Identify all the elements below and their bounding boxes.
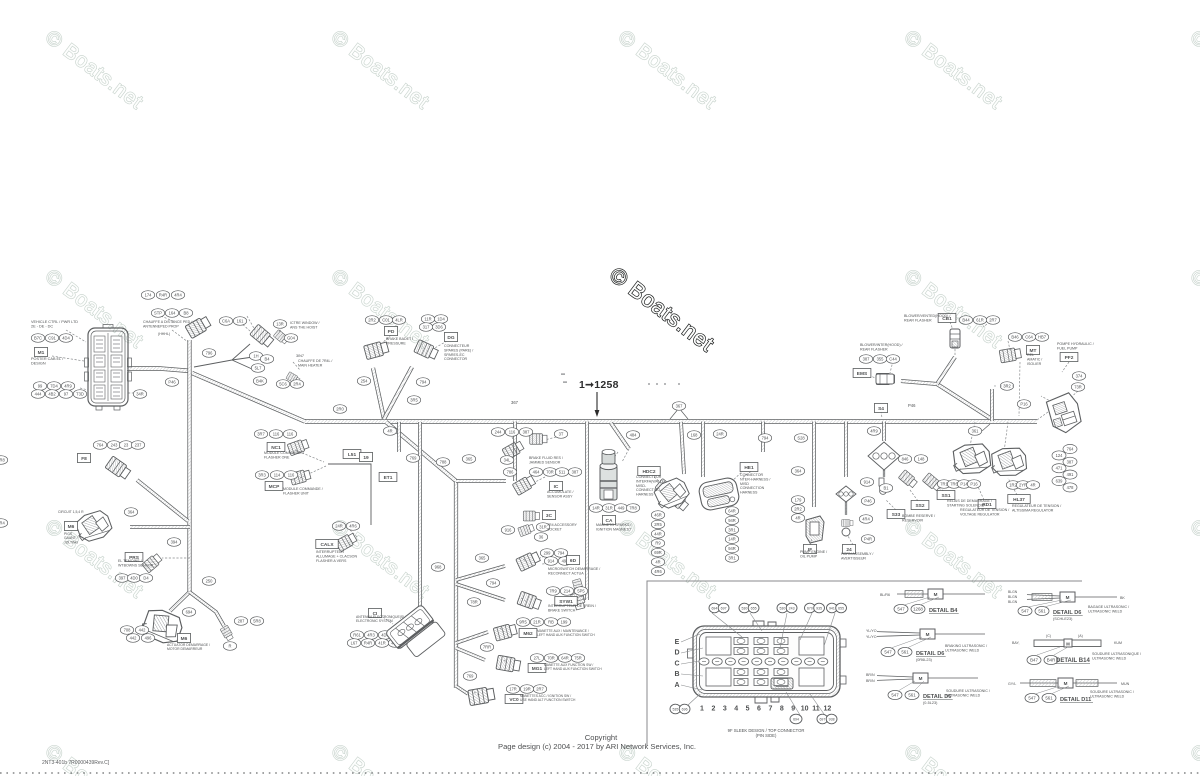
svg-text:639: 639 [1056,479,1064,484]
svg-text:ULTRASONIC WELD: ULTRASONIC WELD [945,649,980,653]
svg-text:CONNECTOR: CONNECTOR [444,357,467,361]
svg-text:7D4: 7D4 [50,384,58,389]
svg-text:CALX: CALX [320,542,334,548]
svg-text:394: 394 [171,540,179,545]
svg-text:46R: 46R [654,513,662,518]
svg-text:M: M [1066,595,1070,600]
svg-text:4R: 4R [655,560,660,565]
svg-text:A: A [674,682,679,689]
svg-text:1➞1258: 1➞1258 [579,379,619,391]
svg-text:YL/YO: YL/YO [866,635,877,639]
svg-text:D4: D4 [143,576,149,581]
svg-text:ULTRASONIC WELD: ULTRASONIC WELD [1088,610,1123,614]
svg-text:794: 794 [490,581,498,586]
svg-text:697: 697 [721,606,727,610]
svg-text:5C6: 5C6 [279,382,287,387]
svg-text:SOUDURE ULTRASONIQUE /: SOUDURE ULTRASONIQUE / [1092,652,1141,656]
svg-text:935: 935 [816,606,822,610]
svg-text:GY/L: GY/L [1008,682,1016,686]
svg-text:364: 364 [795,469,803,474]
svg-text:ISOLIER: ISOLIER [1027,362,1042,366]
svg-text:3R1: 3R1 [728,556,736,561]
svg-text:3: 3 [723,706,727,713]
svg-text:WTBOWNS SENSOR: WTBOWNS SENSOR [118,563,154,567]
svg-text:941: 941 [829,606,835,610]
svg-text:7R4 ACCESSORY: 7R4 ACCESSORY [547,523,577,527]
svg-text:RELAIS DE DEMARRAGE /: RELAIS DE DEMARRAGE / [947,499,992,503]
svg-text:387: 387 [1067,459,1075,464]
svg-text:4R: 4R [387,429,392,434]
svg-text:ULTRASONIC WELD: ULTRASONIC WELD [1090,695,1125,699]
svg-text:449: 449 [618,506,626,511]
svg-text:496: 496 [145,636,153,641]
svg-text:(A): (A) [1078,634,1083,638]
svg-text:4R6: 4R6 [654,569,662,574]
svg-text:237: 237 [135,443,143,448]
svg-text:RB: RB [548,620,554,625]
svg-text:HARNESS: HARNESS [740,491,758,495]
svg-text:4LR: 4LR [395,318,403,323]
svg-text:P46: P46 [864,499,872,504]
svg-text:ULTRASONIC WELD: ULTRASONIC WELD [946,694,981,698]
svg-text:491: 491 [1067,472,1075,477]
svg-text:CIRCUIT 1,5,4 R: CIRCUIT 1,5,4 R [58,510,84,514]
svg-text:SOUDURE ULTRASONIC /: SOUDURE ULTRASONIC / [946,689,990,693]
svg-text:317: 317 [423,325,431,330]
svg-text:1: 1 [700,706,704,713]
svg-text:34R: 34R [136,392,144,397]
svg-text:2R2: 2R2 [368,318,376,323]
svg-text:444: 444 [35,392,43,397]
svg-text:DETAIL B14: DETAIL B14 [1056,658,1090,664]
svg-text:694: 694 [186,610,194,615]
svg-text:STARTING SOLENOID: STARTING SOLENOID [947,503,985,507]
svg-text:61R: 61R [976,318,984,323]
svg-text:287: 287 [238,619,246,624]
svg-text:P46: P46 [168,380,176,385]
svg-text:244: 244 [495,430,503,435]
svg-text:2E - DE - DC: 2E - DE - DC [31,325,53,329]
svg-text:AVERTISSEUR: AVERTISSEUR [841,556,866,560]
svg-text:442: 442 [139,628,147,633]
svg-text:POMPE HYDRAULIC /: POMPE HYDRAULIC / [1057,342,1094,346]
svg-text:STP: STP [154,311,162,316]
svg-text:B4K: B4K [256,379,264,384]
svg-text:694: 694 [711,606,717,610]
svg-text:530: 530 [741,606,747,610]
svg-text:4B2: 4B2 [48,392,56,397]
svg-text:4D4: 4D4 [62,336,70,341]
svg-text:299: 299 [544,551,552,556]
svg-text:199: 199 [561,620,569,625]
svg-text:REL: REL [1027,353,1034,357]
svg-text:69R: 69R [654,550,662,555]
svg-text:YL/YO: YL/YO [866,629,877,633]
svg-text:R4R: R4R [159,293,167,298]
svg-text:CONNECTEUR: CONNECTEUR [636,475,662,479]
svg-text:BAY,: BAY, [1012,641,1020,645]
svg-text:MAIN HEATER: MAIN HEATER [298,363,323,367]
svg-text:(PIN SIDE): (PIN SIDE) [756,733,777,738]
svg-text:4R4: 4R4 [174,293,182,298]
svg-text:243: 243 [789,606,795,610]
svg-text:547: 547 [884,650,892,655]
svg-text:MISD-: MISD- [636,484,647,488]
svg-text:14R: 14R [728,537,736,542]
svg-text:670: 670 [807,606,813,610]
svg-text:BLGN: BLGN [1008,595,1018,599]
svg-text:PD: PD [388,329,395,335]
svg-text:547: 547 [1028,696,1036,701]
svg-text:BRAKE BADET /: BRAKE BADET / [386,337,413,341]
svg-text:174: 174 [145,293,153,298]
svg-text:MAGNETO SPARKS /: MAGNETO SPARKS / [596,523,631,527]
svg-text:367: 367 [511,400,519,405]
svg-text:MG1: MG1 [532,666,543,672]
svg-text:BAGAGE ULTRASONIC /: BAGAGE ULTRASONIC / [1088,605,1129,609]
svg-text:R4R: R4R [364,641,372,646]
svg-text:FLASHER ONE: FLASHER ONE [264,455,290,459]
svg-text:846: 846 [902,457,910,462]
svg-text:ELECTRONIC SYSTEM: ELECTRONIC SYSTEM [356,619,393,623]
svg-text:4R6: 4R6 [349,524,357,529]
svg-text:36: 36 [539,535,544,540]
svg-text:4R: 4R [1030,483,1035,488]
svg-text:CONNECTION: CONNECTION [740,486,765,490]
svg-text:BLOWER/VENTED(HOOD) /: BLOWER/VENTED(HOOD) / [904,314,950,318]
svg-text:ET1: ET1 [384,475,393,481]
svg-text:387: 387 [523,430,531,435]
svg-text:530: 530 [779,606,785,610]
svg-text:968: 968 [435,565,443,570]
svg-text:365: 365 [466,457,474,462]
svg-text:ICTRE WINDOW /: ICTRE WINDOW / [290,321,320,325]
svg-text:94R: 94R [728,518,736,523]
svg-text:2R4: 2R4 [293,382,301,387]
svg-text:(SCHLE23): (SCHLE23) [1053,617,1073,621]
svg-text:FLASHER UNIT: FLASHER UNIT [283,491,310,495]
svg-text:547: 547 [891,693,899,698]
svg-text:561: 561 [901,650,909,655]
svg-text:LEFT HAND AUX FUNCTION SWITCH: LEFT HAND AUX FUNCTION SWITCH [537,633,595,637]
svg-text:LEFT HAND AUX FUNCTION SWITCH: LEFT HAND AUX FUNCTION SWITCH [544,667,602,671]
svg-text:Page design (c) 2004 - 2017 by: Page design (c) 2004 - 2017 by ARI Netwo… [498,742,696,751]
svg-text:AMATIC /: AMATIC / [1027,357,1042,361]
svg-text:3T: 3T [559,432,564,437]
svg-text:3R3: 3R3 [258,473,266,478]
svg-text:M: M [1066,642,1070,647]
svg-text:C91: C91 [48,336,56,341]
svg-text:374: 374 [1076,374,1084,379]
svg-text:2: 2 [711,706,715,713]
svg-text:RESERVOIR: RESERVOIR [902,518,924,522]
svg-text:6D: 6D [570,558,577,564]
svg-text:364: 364 [128,510,136,515]
svg-text:DETAIL D6: DETAIL D6 [916,651,944,657]
svg-text:BLOWER/INTER(HOOD) /: BLOWER/INTER(HOOD) / [860,343,903,347]
svg-text:INTERRUPTEUR: INTERRUPTEUR [316,550,345,554]
svg-text:C64: C64 [1025,335,1033,340]
svg-text:7R8: 7R8 [629,506,637,511]
svg-text:L51: L51 [348,452,357,458]
svg-text:655: 655 [751,606,757,610]
svg-text:367: 367 [676,404,684,409]
svg-text:C: C [674,660,679,667]
svg-text:355: 355 [877,357,885,362]
svg-text:ACCUMULATE /: ACCUMULATE / [547,490,574,494]
svg-text:DESIGN: DESIGN [31,362,46,366]
svg-text:(C): (C) [1046,634,1051,638]
svg-text:2R0: 2R0 [336,407,344,412]
svg-text:B4: B4 [264,357,270,362]
svg-text:B8: B8 [183,311,189,316]
svg-text:JOLTING: JOLTING [64,540,78,544]
svg-text:3R5: 3R5 [410,398,418,403]
svg-text:S28: S28 [797,436,805,441]
svg-text:NTER-HARNESS /: NTER-HARNESS / [740,477,770,481]
svg-text:MODULE COMMANDE /: MODULE COMMANDE / [264,451,304,455]
svg-text:FUEL PUMP: FUEL PUMP [1057,346,1078,350]
svg-text:3C: 3C [546,513,553,519]
svg-text:BR/N: BR/N [866,673,875,677]
svg-text:7R8: 7R8 [0,458,5,463]
svg-text:INTERRUPTEUR DE FREIN /: INTERRUPTEUR DE FREIN / [548,604,596,608]
svg-text:HB7: HB7 [1038,335,1047,340]
svg-text:24R: 24R [335,524,343,529]
svg-text:PRESSURE: PRESSURE [386,341,406,345]
svg-text:938: 938 [829,717,835,721]
svg-text:13R: 13R [276,322,284,327]
svg-text:EL TEMOINS /: EL TEMOINS / [118,559,142,563]
svg-text:MOTOR DEMARREUR: MOTOR DEMARREUR [167,647,203,651]
svg-text:696: 696 [682,707,688,711]
svg-text:179: 179 [795,498,803,503]
svg-text:243: 243 [111,443,119,448]
svg-text:9R5: 9R5 [519,620,527,625]
svg-text:ALLUMAGE + CLACSON: ALLUMAGE + CLACSON [316,554,357,558]
svg-text:794: 794 [420,380,428,385]
svg-text:788: 788 [440,460,448,465]
svg-text:94R: 94R [728,546,736,551]
svg-text:BRAKE SWITCH: BRAKE SWITCH [548,608,576,612]
svg-text:168: 168 [691,433,699,438]
svg-text:B47: B47 [1030,658,1038,663]
svg-text:SOUDURE ULTRASONIC /: SOUDURE ULTRASONIC / [1090,690,1134,694]
svg-text:116: 116 [273,432,280,437]
svg-text:HORN ASSEMBLY /: HORN ASSEMBLY / [841,552,873,556]
svg-text:361: 361 [972,429,980,434]
svg-text:REGULATEUR DE TENSION /: REGULATEUR DE TENSION / [1012,504,1061,508]
svg-text:CONNECTEUR: CONNECTEUR [444,344,470,348]
svg-text:2R2: 2R2 [794,507,802,512]
svg-text:161: 161 [237,319,245,324]
svg-text:23: 23 [124,443,129,448]
svg-text:HARNESS: HARNESS [636,493,654,497]
svg-text:BRAKE FLUID RES /: BRAKE FLUID RES / [529,456,563,460]
svg-text:R61: R61 [353,633,361,638]
svg-text:REGULATEUR DE TENSION /: REGULATEUR DE TENSION / [960,508,1009,512]
svg-text:ALTISSIMA REGULATOR: ALTISSIMA REGULATOR [1012,508,1054,512]
svg-text:214: 214 [564,589,572,594]
svg-text:VEHICLE CTRL / PWR LTD: VEHICLE CTRL / PWR LTD [31,320,78,324]
svg-text:3IN7: 3IN7 [296,354,304,358]
svg-text:561: 561 [908,693,916,698]
svg-text:365: 365 [479,556,487,561]
svg-text:5: 5 [746,706,750,713]
svg-text:INTERFA(WALL): INTERFA(WALL) [636,479,663,483]
svg-text:478: 478 [1067,485,1075,490]
svg-text:655: 655 [838,606,844,610]
svg-text:397: 397 [119,576,127,581]
svg-text:P16: P16 [970,482,978,487]
svg-text:148: 148 [918,457,926,462]
svg-text:914: 914 [548,559,556,564]
svg-text:JAMMED SENSOR: JAMMED SENSOR [529,460,561,464]
svg-text:M6: M6 [68,524,75,530]
svg-text:64R: 64R [561,656,569,661]
svg-text:ANTENNEPED PROP: ANTENNEPED PROP [143,324,179,328]
svg-text:4R3: 4R3 [367,633,375,638]
svg-text:HE1: HE1 [744,465,754,471]
svg-text:2R5: 2R5 [654,522,662,527]
svg-text:19: 19 [363,455,369,461]
svg-text:B4R: B4R [1047,658,1056,663]
svg-text:S4: S4 [878,406,884,412]
svg-text:2R7: 2R7 [989,318,997,323]
svg-text:MUN: MUN [1121,682,1130,686]
svg-text:5L7: 5L7 [255,366,263,371]
svg-text:794: 794 [558,551,566,556]
svg-text:ULTRASONIC WELD: ULTRASONIC WELD [1092,657,1127,661]
svg-text:44R: 44R [654,531,662,536]
svg-text:764: 764 [97,443,105,448]
svg-text:4R9: 4R9 [870,429,878,434]
svg-text:B44: B44 [962,318,970,323]
svg-text:764: 764 [1067,447,1075,452]
svg-text:P16: P16 [1020,402,1028,407]
svg-text:KUM: KUM [1114,641,1122,645]
svg-text:(HHHL): (HHHL) [158,332,170,336]
svg-text:REAR FLASHER: REAR FLASHER [904,318,932,322]
svg-text:SPARES (PARE) /: SPARES (PARE) / [444,348,473,352]
svg-text:VOLTAGE REGULATOR: VOLTAGE REGULATOR [960,512,1000,516]
svg-text:116: 116 [288,473,295,478]
svg-text:IGNITION MAGNETO: IGNITION MAGNETO [596,527,631,531]
svg-text:BL/R6: BL/R6 [880,593,890,597]
svg-text:OIL PUMP: OIL PUMP [800,554,818,558]
svg-text:F8: F8 [81,456,87,462]
svg-text:HL37: HL37 [1013,497,1025,503]
svg-text:70R: 70R [546,470,554,475]
svg-text:M1: M1 [38,350,45,356]
svg-text:M: M [926,632,930,637]
svg-text:CHAUFFE A DISTANCE PED /: CHAUFFE A DISTANCE PED / [143,320,192,324]
svg-text:Copyright: Copyright [585,733,618,742]
svg-text:1268: 1268 [913,607,923,612]
svg-text:916: 916 [505,528,513,533]
svg-text:254: 254 [361,379,369,384]
svg-text:914: 914 [864,480,872,485]
svg-text:70R: 70R [547,656,555,661]
svg-text:561: 561 [1045,696,1053,701]
svg-text:19R: 19R [523,687,531,692]
svg-text:REAR FLASHER: REAR FLASHER [860,347,888,351]
svg-text:MCP: MCP [269,484,280,490]
svg-text:E: E [675,639,680,646]
svg-text:1D4: 1D4 [437,317,445,322]
svg-text:4R9: 4R9 [64,384,72,389]
svg-text:547: 547 [897,607,905,612]
svg-text:DETAIL D11: DETAIL D11 [1060,697,1091,703]
svg-text:VC0: VC0 [509,697,519,703]
svg-text:C6A: C6A [222,319,230,324]
svg-text:DG: DG [447,335,454,341]
svg-text:387: 387 [572,470,580,475]
svg-text:7R9: 7R9 [549,589,557,594]
svg-text:M62: M62 [523,631,533,637]
svg-text:M6: M6 [181,636,188,642]
svg-text:442: 442 [130,636,138,641]
svg-text:BR/N: BR/N [866,679,875,683]
svg-text:PUMP ENGINE /: PUMP ENGINE / [800,550,827,554]
svg-text:250: 250 [206,579,214,584]
svg-text:MODULE COMMANDE /: MODULE COMMANDE / [283,487,323,491]
svg-text:9R4: 9R4 [0,521,5,526]
svg-text:2YR: 2YR [1019,483,1027,488]
svg-text:547: 547 [1021,609,1029,614]
svg-text:ANS THE HOIST: ANS THE HOIST [290,325,318,329]
svg-text:697: 697 [819,717,825,721]
svg-text:L67: L67 [351,641,359,646]
svg-text:SPARES-EC: SPARES-EC [444,353,465,357]
svg-text:PF2: PF2 [1065,355,1074,361]
svg-text:97: 97 [64,392,69,397]
svg-text:C01: C01 [382,318,390,323]
svg-text:769: 769 [467,674,475,679]
svg-text:3R7: 3R7 [257,432,265,437]
svg-text:786: 786 [507,470,515,475]
svg-text:694: 694 [793,717,799,721]
svg-text:USE HAND ALT FUNCTION SWITCH: USE HAND ALT FUNCTION SWITCH [520,698,576,702]
svg-text:41R: 41R [378,641,386,646]
svg-text:(0R6L23): (0R6L23) [916,658,933,662]
svg-text:POSTER CAB EL /: POSTER CAB EL / [31,357,64,361]
svg-text:5R8: 5R8 [253,619,261,624]
svg-text:G04: G04 [287,336,295,341]
svg-text:31R: 31R [539,525,547,530]
svg-text:DETAIL D6: DETAIL D6 [1053,610,1081,616]
svg-text:4R: 4R [795,516,800,521]
svg-text:535: 535 [672,707,678,711]
svg-text:12: 12 [824,706,832,713]
svg-text:SENSOR ASSY: SENSOR ASSY [547,494,573,498]
svg-text:2NT3-401b 7R0000439Rev.C]: 2NT3-401b 7R0000439Rev.C] [42,760,110,766]
svg-text:MICROSWITCH DEMARRAGE /: MICROSWITCH DEMARRAGE / [548,567,600,571]
svg-text:7: 7 [768,706,772,713]
svg-text:S33: S33 [892,512,901,518]
svg-text:73R: 73R [1074,385,1082,390]
svg-text:BRAKING ULTRASONIC /: BRAKING ULTRASONIC / [945,644,987,648]
svg-text:6: 6 [757,706,761,713]
svg-text:17R: 17R [509,687,517,692]
svg-text:3R1: 3R1 [728,527,736,532]
svg-text:7RR: 7RR [483,645,491,650]
svg-text:21R: 21R [533,620,541,625]
svg-text:4D0: 4D0 [130,576,138,581]
svg-text:RECONNECT ACTUA: RECONNECT ACTUA [548,571,584,575]
svg-text:R9: R9 [655,541,661,546]
svg-text:4R4: 4R4 [862,517,870,522]
